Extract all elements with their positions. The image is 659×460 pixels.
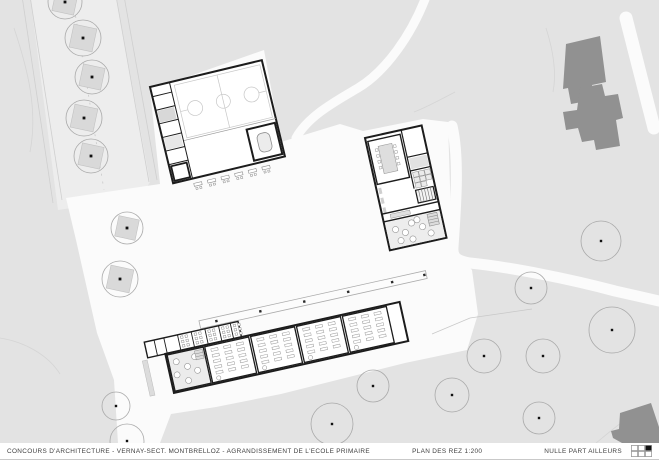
plan-scale-label: PLAN DES REZ 1:200 [412, 448, 482, 455]
site-plan-drawing [0, 0, 659, 443]
canopy-post [347, 290, 350, 293]
canopy-post [303, 300, 306, 303]
plan-sheet: CONCOURS D'ARCHITECTURE - VERNAY-SECT. M… [0, 0, 659, 460]
canopy-post [391, 281, 394, 284]
canopy-post [259, 310, 262, 313]
firm-logo-icon [631, 445, 652, 457]
firm-name: NULLE PART AILLEURS [544, 448, 622, 455]
stacked-chairs [427, 212, 439, 226]
activity-room [167, 347, 211, 391]
canopy-post [215, 320, 218, 323]
project-title: CONCOURS D'ARCHITECTURE - VERNAY-SECT. M… [7, 448, 370, 455]
title-bar: CONCOURS D'ARCHITECTURE - VERNAY-SECT. M… [0, 443, 659, 460]
gym-meeting-room [247, 123, 283, 161]
canopy-post [423, 274, 426, 277]
